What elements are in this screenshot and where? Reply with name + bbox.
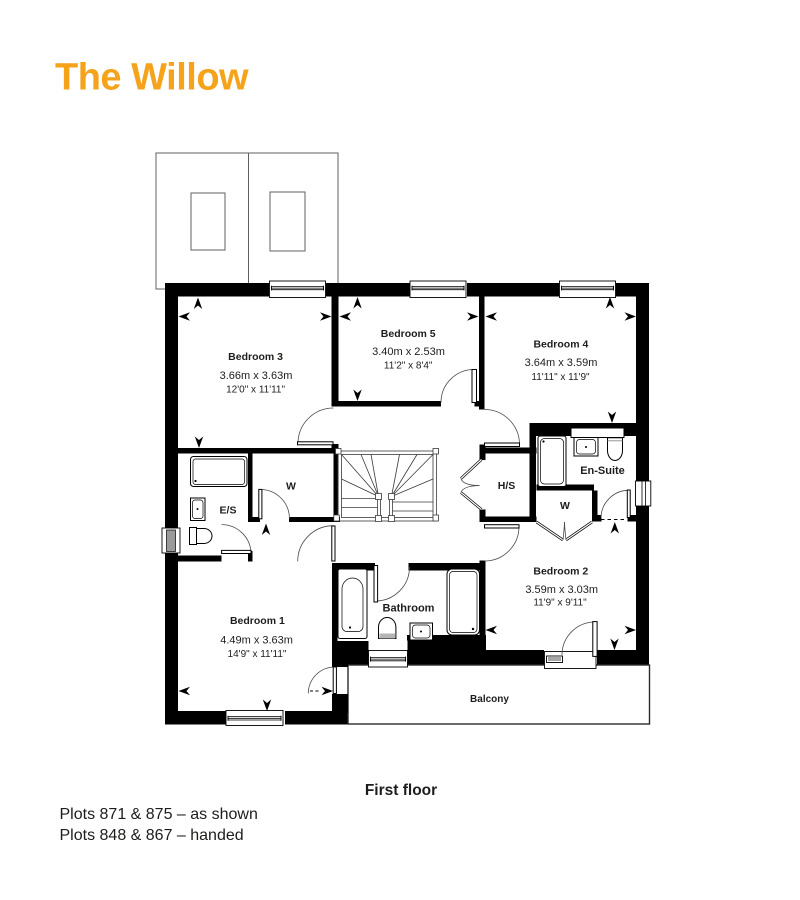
- svg-text:11'11" x 11'9": 11'11" x 11'9": [531, 372, 590, 383]
- svg-text:3.64m x 3.59m: 3.64m x 3.59m: [525, 357, 598, 369]
- svg-text:Bedroom 3: Bedroom 3: [228, 351, 283, 363]
- svg-text:The Willow: The Willow: [55, 57, 249, 99]
- svg-text:H/S: H/S: [498, 480, 516, 492]
- svg-text:En-Suite: En-Suite: [580, 465, 625, 477]
- svg-text:Bedroom 4: Bedroom 4: [533, 339, 588, 351]
- svg-text:14'9" x 11'11": 14'9" x 11'11": [228, 649, 287, 660]
- svg-text:W: W: [560, 500, 570, 512]
- svg-text:Bedroom 1: Bedroom 1: [230, 615, 285, 627]
- svg-text:W: W: [286, 481, 296, 493]
- svg-text:3.59m x 3.03m: 3.59m x 3.03m: [525, 584, 598, 596]
- svg-text:3.40m x 2.53m: 3.40m x 2.53m: [372, 346, 445, 358]
- svg-text:4.49m x 3.63m: 4.49m x 3.63m: [220, 635, 293, 647]
- svg-text:Plots 871 & 875 – as shown: Plots 871 & 875 – as shown: [60, 806, 258, 823]
- svg-text:Plots 848 & 867 – handed: Plots 848 & 867 – handed: [60, 827, 244, 844]
- svg-text:Bathroom: Bathroom: [383, 603, 435, 615]
- svg-text:Balcony: Balcony: [470, 694, 509, 705]
- svg-text:E/S: E/S: [220, 505, 237, 517]
- svg-text:Bedroom 2: Bedroom 2: [533, 566, 588, 578]
- svg-text:Bedroom 5: Bedroom 5: [381, 328, 436, 340]
- svg-text:12'0" x 11'11": 12'0" x 11'11": [226, 385, 285, 396]
- svg-text:3.66m x 3.63m: 3.66m x 3.63m: [220, 370, 293, 382]
- svg-text:First floor: First floor: [365, 782, 437, 799]
- svg-text:11'2" x 8'4": 11'2" x 8'4": [384, 361, 433, 372]
- svg-text:11'9" x 9'11": 11'9" x 9'11": [533, 598, 587, 609]
